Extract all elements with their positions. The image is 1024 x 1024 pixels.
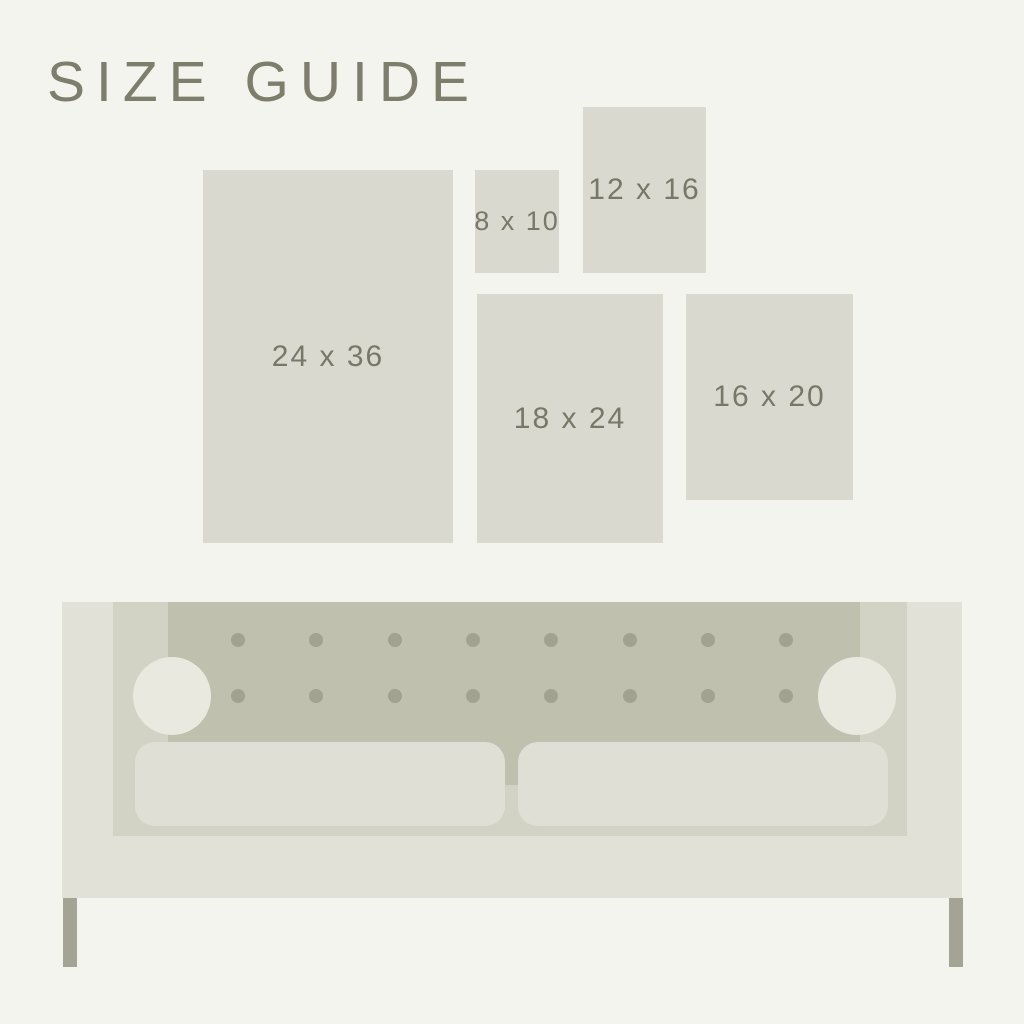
size-label-16x20: 16 x 20 bbox=[713, 380, 825, 414]
size-swatch-24x36: 24 x 36 bbox=[203, 170, 453, 543]
tufting-button bbox=[701, 689, 715, 703]
tufting-button bbox=[231, 633, 245, 647]
tufting-button bbox=[388, 689, 402, 703]
tufting-button bbox=[309, 689, 323, 703]
tufting-button bbox=[544, 633, 558, 647]
size-label-18x24: 18 x 24 bbox=[514, 402, 626, 436]
tufting-button bbox=[779, 689, 793, 703]
tufting-button bbox=[466, 633, 480, 647]
tufting-button bbox=[623, 633, 637, 647]
tufting-button bbox=[779, 633, 793, 647]
tufting-button bbox=[701, 633, 715, 647]
size-label-12x16: 12 x 16 bbox=[588, 173, 700, 207]
size-swatch-8x10: 8 x 10 bbox=[475, 170, 559, 273]
tufting-button bbox=[388, 633, 402, 647]
seat-cushion-left bbox=[135, 742, 505, 826]
size-swatch-18x24: 18 x 24 bbox=[477, 294, 663, 543]
page-title: SIZE GUIDE bbox=[47, 54, 480, 111]
tufting-button bbox=[466, 689, 480, 703]
tufting-button bbox=[623, 689, 637, 703]
size-label-8x10: 8 x 10 bbox=[474, 206, 560, 237]
size-label-24x36: 24 x 36 bbox=[272, 340, 384, 374]
tufting-button bbox=[231, 689, 245, 703]
tufting-button bbox=[309, 633, 323, 647]
armrest-knob-right bbox=[818, 657, 896, 735]
couch-leg-right bbox=[949, 898, 963, 967]
seat-cushion-right bbox=[518, 742, 888, 826]
size-swatch-16x20: 16 x 20 bbox=[686, 294, 853, 500]
tufting-button bbox=[544, 689, 558, 703]
size-guide-infographic: SIZE GUIDE 24 x 36 8 x 10 12 x 16 18 x 2… bbox=[0, 0, 1024, 1024]
couch-leg-left bbox=[63, 898, 77, 967]
size-swatch-12x16: 12 x 16 bbox=[583, 107, 706, 273]
armrest-knob-left bbox=[133, 657, 211, 735]
